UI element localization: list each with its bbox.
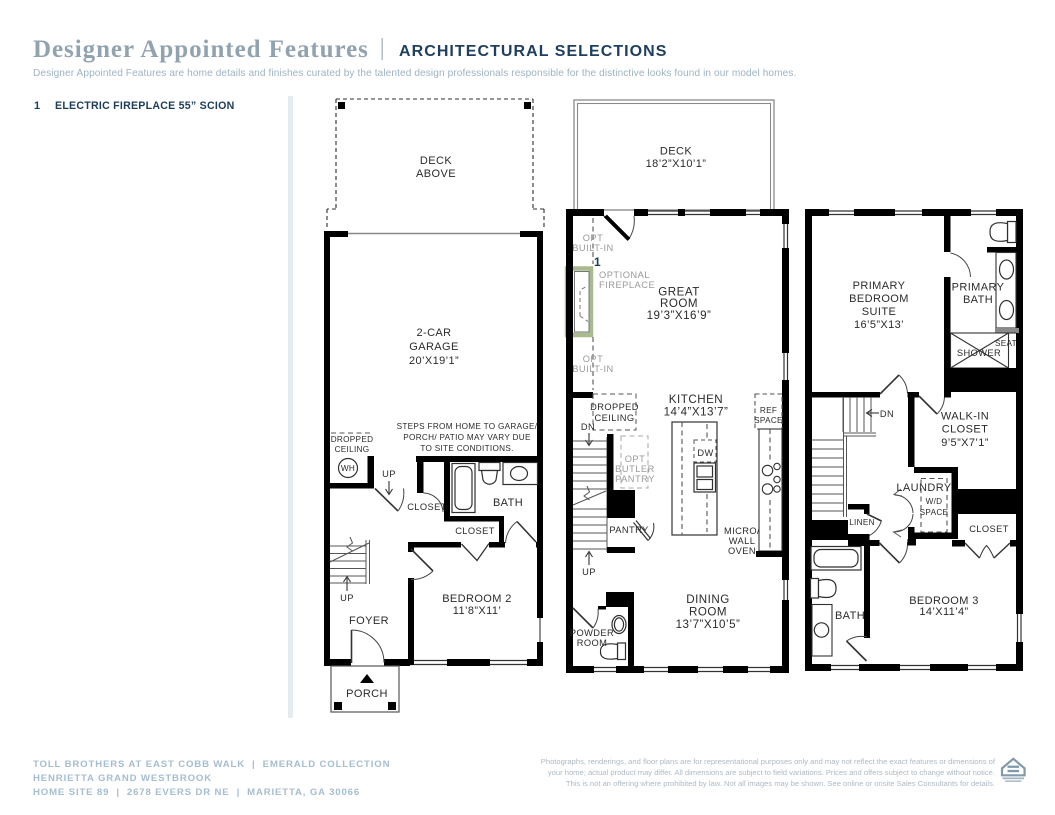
svg-text:13’7”X10’5”: 13’7”X10’5” bbox=[676, 618, 741, 631]
svg-text:16’5”X13’: 16’5”X13’ bbox=[854, 319, 904, 331]
svg-text:LINEN: LINEN bbox=[849, 518, 875, 527]
svg-text:Designer Appointed Features: Designer Appointed Features bbox=[33, 36, 369, 63]
svg-text:SHOWER: SHOWER bbox=[957, 348, 1001, 358]
svg-text:This is not an offering where: This is not an offering where prohibited… bbox=[566, 779, 995, 788]
svg-text:20’X19’1”: 20’X19’1” bbox=[409, 355, 459, 367]
svg-text:PORCH/ PATIO MAY VARY DUE: PORCH/ PATIO MAY VARY DUE bbox=[403, 433, 531, 442]
svg-text:14’4”X13’7”: 14’4”X13’7” bbox=[664, 406, 729, 419]
svg-text:18’2”X10’1”: 18’2”X10’1” bbox=[646, 158, 707, 170]
svg-text:ARCHITECTURAL SELECTIONS: ARCHITECTURAL SELECTIONS bbox=[399, 43, 667, 60]
svg-text:Photographs, renderings, and f: Photographs, renderings, and floor plans… bbox=[541, 757, 996, 766]
svg-text:POWDER: POWDER bbox=[570, 628, 614, 638]
svg-text:DROPPED: DROPPED bbox=[590, 402, 639, 412]
svg-text:BEDROOM 2: BEDROOM 2 bbox=[442, 593, 512, 605]
svg-text:14’X11’4”: 14’X11’4” bbox=[919, 606, 968, 618]
svg-text:KITCHEN: KITCHEN bbox=[669, 393, 723, 406]
svg-text:BUTLER: BUTLER bbox=[615, 464, 655, 474]
svg-text:DN: DN bbox=[581, 422, 595, 432]
svg-text:PRIMARY: PRIMARY bbox=[952, 282, 1005, 294]
svg-text:SEAT: SEAT bbox=[995, 339, 1017, 348]
svg-text:HOME SITE 89 | 2678 EVERS DR: HOME SITE 89 | 2678 EVERS DR NE | MARIET… bbox=[33, 787, 360, 798]
svg-text:PRIMARY: PRIMARY bbox=[853, 280, 906, 292]
svg-text:WALK-IN: WALK-IN bbox=[941, 411, 989, 423]
svg-text:BATH: BATH bbox=[835, 610, 865, 622]
svg-text:DROPPED: DROPPED bbox=[331, 435, 374, 444]
svg-text:TO SITE CONDITIONS.: TO SITE CONDITIONS. bbox=[420, 444, 513, 453]
svg-text:ROOM: ROOM bbox=[689, 606, 727, 619]
svg-text:CEILING: CEILING bbox=[595, 413, 635, 423]
svg-text:SUITE: SUITE bbox=[862, 306, 896, 318]
svg-text:BEDROOM: BEDROOM bbox=[849, 293, 909, 305]
svg-text:MICRO/: MICRO/ bbox=[724, 526, 760, 536]
svg-text:LAUNDRY: LAUNDRY bbox=[896, 482, 951, 494]
svg-text:DINING: DINING bbox=[686, 593, 730, 606]
svg-text:HENRIETTA GRAND WESTBROOK: HENRIETTA GRAND WESTBROOK bbox=[33, 773, 212, 784]
svg-text:STEPS FROM HOME TO GARAGE/: STEPS FROM HOME TO GARAGE/ bbox=[397, 422, 538, 431]
svg-text:2-CAR: 2-CAR bbox=[416, 327, 451, 339]
svg-text:CLOSET: CLOSET bbox=[942, 424, 988, 436]
svg-text:CLOSET: CLOSET bbox=[407, 502, 447, 512]
svg-text:OPT: OPT bbox=[583, 354, 604, 364]
svg-text:OVEN: OVEN bbox=[728, 546, 756, 556]
svg-text:DN: DN bbox=[880, 409, 894, 419]
svg-text:Designer Appointed Features ar: Designer Appointed Features are home det… bbox=[33, 68, 796, 79]
svg-text:GARAGE: GARAGE bbox=[409, 341, 458, 353]
svg-text:1: 1 bbox=[34, 100, 40, 112]
svg-text:TOLL BROTHERS AT EAST COBB WAL: TOLL BROTHERS AT EAST COBB WALK | EMERAL… bbox=[33, 759, 390, 770]
svg-text:PANTRY: PANTRY bbox=[615, 474, 655, 484]
svg-text:1: 1 bbox=[594, 255, 601, 269]
svg-text:BUILT-IN: BUILT-IN bbox=[572, 364, 614, 374]
svg-text:9’5”X7’1”: 9’5”X7’1” bbox=[941, 437, 989, 449]
svg-text:W/D: W/D bbox=[926, 497, 943, 506]
svg-text:DW: DW bbox=[697, 448, 713, 458]
svg-text:WALL: WALL bbox=[729, 536, 756, 546]
svg-text:ELECTRIC FIREPLACE 55” SCION: ELECTRIC FIREPLACE 55” SCION bbox=[55, 100, 234, 112]
svg-text:UP: UP bbox=[382, 469, 396, 479]
svg-text:SPACE: SPACE bbox=[920, 508, 949, 517]
svg-text:DECK: DECK bbox=[660, 146, 692, 158]
svg-text:UP: UP bbox=[340, 593, 354, 603]
svg-text:PORCH: PORCH bbox=[346, 688, 388, 700]
svg-text:ABOVE: ABOVE bbox=[416, 168, 456, 180]
svg-text:SPACE: SPACE bbox=[754, 416, 783, 425]
svg-text:OPT: OPT bbox=[583, 233, 604, 243]
svg-text:CLOSET: CLOSET bbox=[969, 524, 1009, 534]
svg-text:11’8”X11’: 11’8”X11’ bbox=[453, 605, 501, 617]
svg-text:OPTIONAL: OPTIONAL bbox=[599, 270, 650, 280]
svg-text:BATH: BATH bbox=[963, 294, 993, 306]
svg-text:19’3”X16’9”: 19’3”X16’9” bbox=[647, 309, 712, 322]
svg-text:ROOM: ROOM bbox=[577, 638, 608, 648]
svg-text:CEILING: CEILING bbox=[335, 445, 370, 454]
svg-text:FOYER: FOYER bbox=[349, 615, 389, 627]
svg-text:BUILT-IN: BUILT-IN bbox=[572, 243, 614, 253]
svg-text:CLOSET: CLOSET bbox=[455, 526, 495, 536]
svg-text:REF: REF bbox=[760, 406, 777, 415]
svg-text:FIREPLACE: FIREPLACE bbox=[599, 280, 655, 290]
svg-text:DECK: DECK bbox=[420, 155, 452, 167]
svg-text:BATH: BATH bbox=[493, 497, 523, 509]
svg-text:UP: UP bbox=[582, 567, 596, 577]
svg-text:your home; actual product may: your home; actual product may differ. Al… bbox=[548, 768, 995, 777]
svg-text:WH: WH bbox=[341, 464, 355, 473]
svg-text:OPT: OPT bbox=[625, 454, 646, 464]
